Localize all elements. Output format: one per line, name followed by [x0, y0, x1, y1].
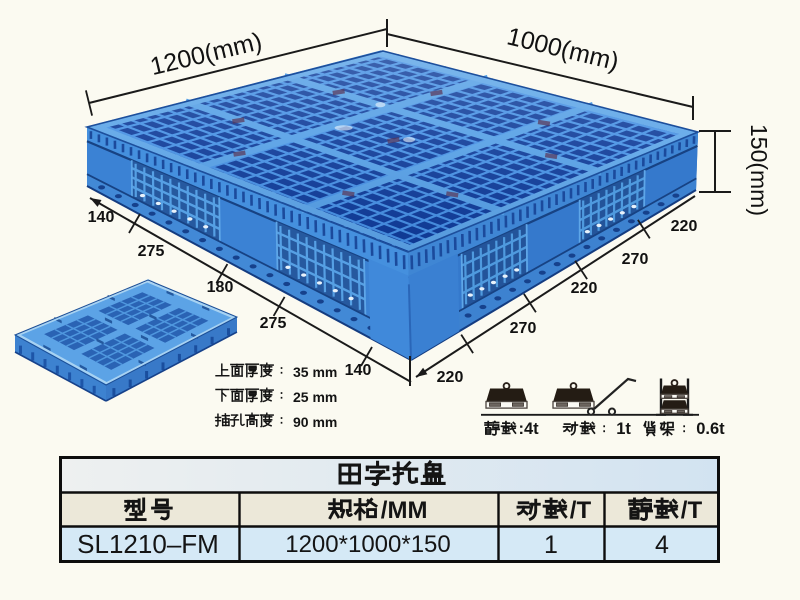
svg-text:SL1210–FM: SL1210–FM	[77, 529, 219, 559]
svg-text:220: 220	[437, 369, 464, 386]
svg-text:270: 270	[622, 251, 649, 268]
svg-text:/T: /T	[570, 497, 592, 524]
svg-text:25 mm: 25 mm	[293, 389, 337, 405]
svg-text:220: 220	[571, 280, 598, 297]
svg-text:140: 140	[88, 209, 115, 226]
svg-text:275: 275	[260, 315, 287, 332]
svg-text:90 mm: 90 mm	[293, 414, 337, 430]
svg-text:150(mm): 150(mm)	[746, 124, 772, 216]
svg-text:1t: 1t	[616, 420, 631, 438]
svg-text:4: 4	[655, 531, 669, 559]
svg-text::4t: :4t	[519, 420, 540, 438]
svg-text:140: 140	[345, 362, 372, 379]
svg-text:/T: /T	[681, 497, 703, 524]
svg-text:180: 180	[207, 279, 234, 296]
svg-text:1200*1000*150: 1200*1000*150	[285, 531, 451, 558]
svg-text:35 mm: 35 mm	[293, 364, 337, 380]
svg-text:1: 1	[544, 531, 558, 559]
svg-text:/MM: /MM	[381, 497, 428, 524]
svg-text:270: 270	[510, 320, 537, 337]
svg-text:220: 220	[671, 218, 698, 235]
svg-text:275: 275	[138, 243, 165, 260]
svg-text:0.6t: 0.6t	[696, 420, 725, 438]
